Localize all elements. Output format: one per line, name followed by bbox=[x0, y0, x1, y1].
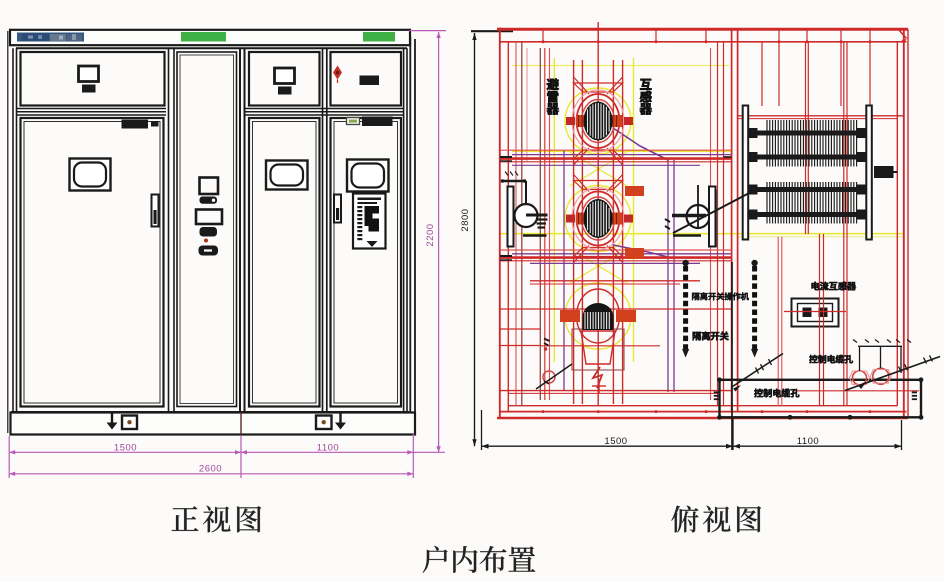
svg-text:2600: 2600 bbox=[199, 464, 222, 475]
svg-text:1500: 1500 bbox=[114, 442, 137, 453]
svg-text:1100: 1100 bbox=[317, 442, 339, 453]
svg-text:1100: 1100 bbox=[797, 436, 819, 447]
svg-text:2800: 2800 bbox=[460, 208, 471, 231]
svg-text:1500: 1500 bbox=[604, 436, 627, 447]
svg-text:2200: 2200 bbox=[425, 223, 436, 246]
